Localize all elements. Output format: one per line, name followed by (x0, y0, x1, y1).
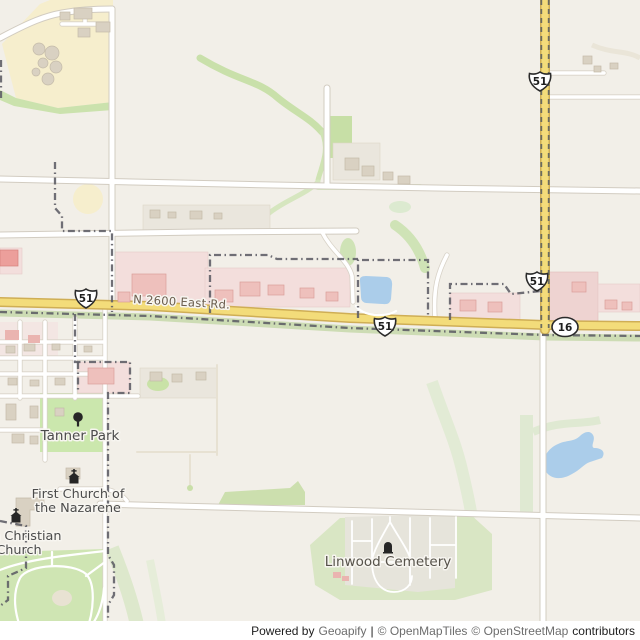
map-viewport[interactable]: 51 51 51 51 16 (0, 0, 640, 640)
openstreetmap-link[interactable]: © OpenStreetMap (471, 624, 568, 638)
us-51-shield-number: 51 (533, 76, 548, 88)
pond (360, 276, 392, 304)
us-51-shield-number: 51 (530, 276, 545, 288)
label-first-church-line2: the Nazarene (35, 501, 121, 516)
attribution-separator: | (371, 624, 374, 638)
openmaptiles-link[interactable]: © OpenMapTiles (378, 624, 468, 638)
attribution-contributors: contributors (572, 624, 635, 638)
geoapify-link[interactable]: Geoapify (318, 624, 366, 638)
label-christian-church-line1: a Christian (0, 529, 61, 544)
label-first-church-line1: First Church of (32, 487, 125, 502)
il-16-shield-number: 16 (558, 322, 573, 334)
us-51-shield-number: 51 (79, 293, 94, 305)
il-16-shield: 16 (552, 318, 578, 337)
label-linwood-cemetery: Linwood Cemetery (325, 554, 452, 570)
attribution-powered-by: Powered by (251, 624, 314, 638)
label-christian-church-line2: Church (0, 543, 42, 558)
label-tanner-park: Tanner Park (40, 428, 120, 444)
map-canvas[interactable]: 51 51 51 51 16 (0, 0, 640, 640)
us-51-shield-number: 51 (378, 321, 393, 333)
attribution-bar: Powered by Geoapify | © OpenMapTiles © O… (0, 621, 640, 640)
